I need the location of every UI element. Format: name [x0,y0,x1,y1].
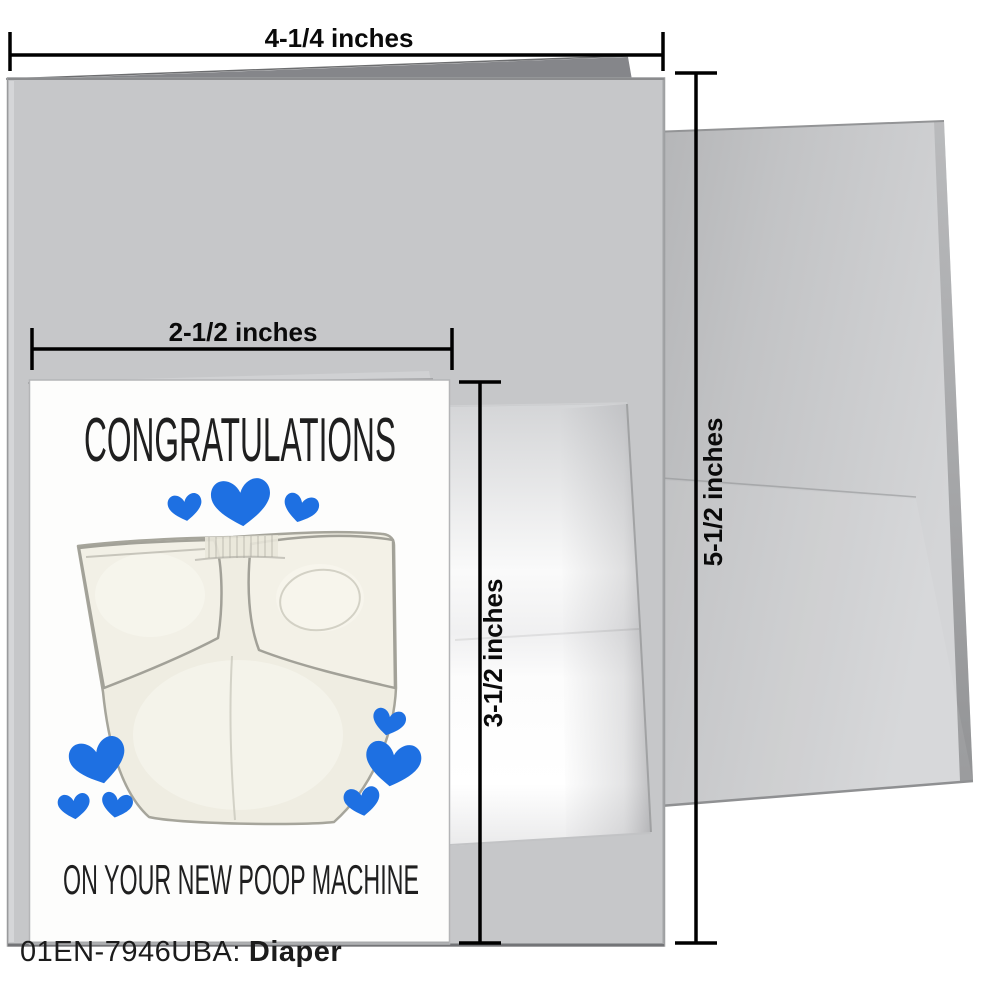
caption-name: Diaper [249,936,342,968]
dim-large-height-label: 5-1/2 inches [698,418,728,567]
dim-large-width-label: 4-1/4 inches [265,23,414,53]
diaper-body-highlight [133,660,343,810]
large-card-left-highlight [9,81,14,942]
dim-mini-height-label: 3-1/2 inches [478,579,508,728]
caption: 01EN-7946UBA:Diaper [20,936,342,969]
card-title: CONGRATULATIONS [84,406,396,475]
product-image: CONGRATULATIONS [0,0,984,984]
card-subtitle: ON YOUR NEW POOP MACHINE [63,856,419,903]
large-card-back-fold [6,57,632,80]
diaper-illustration [78,532,396,824]
dim-mini-width-label: 2-1/2 inches [169,317,318,347]
diaper-left-flap-highlight [95,553,205,637]
scene-graphics: CONGRATULATIONS [0,0,984,984]
caption-sku: 01EN-7946UBA: [20,936,241,968]
